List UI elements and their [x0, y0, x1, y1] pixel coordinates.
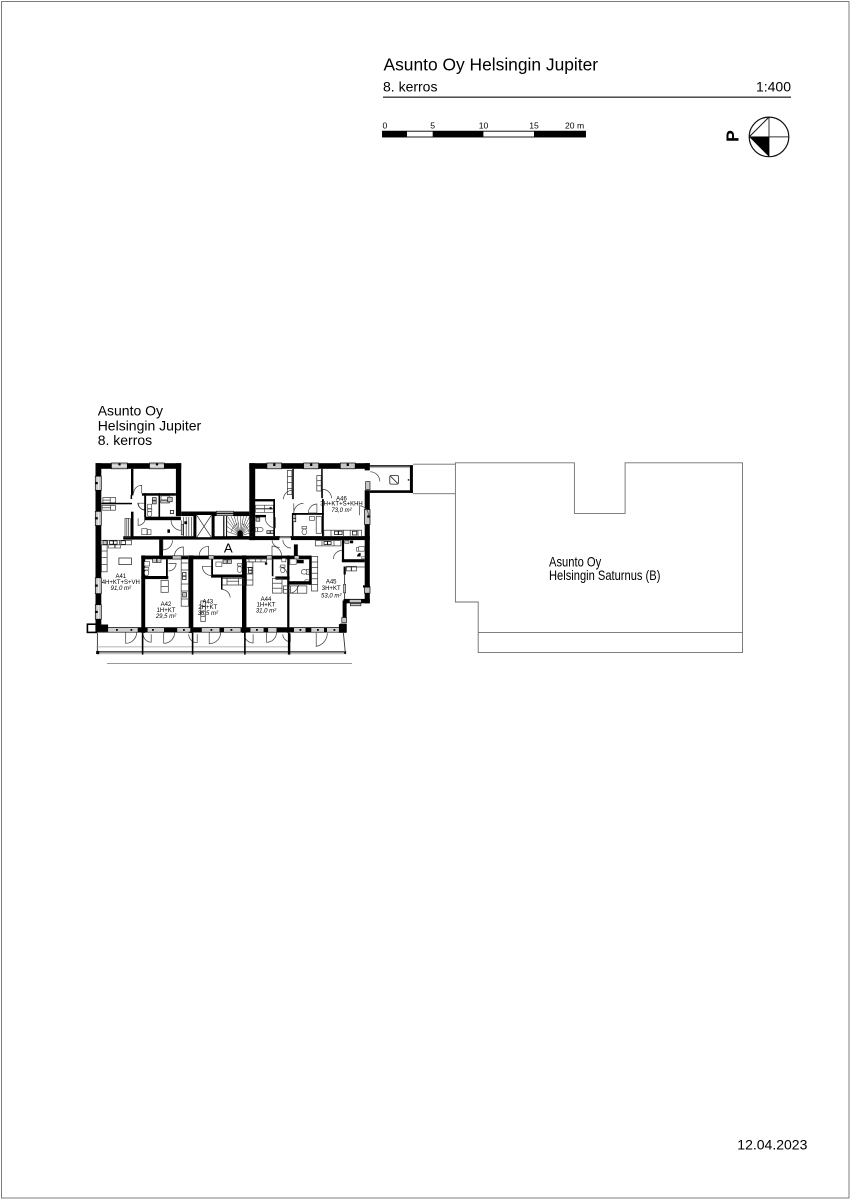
svg-text:A45: A45: [326, 579, 337, 585]
svg-text:10: 10: [479, 120, 489, 130]
svg-text:Helsingin Jupiter: Helsingin Jupiter: [98, 417, 202, 433]
svg-text:53,0 m²: 53,0 m²: [321, 593, 342, 599]
svg-text:31,0 m²: 31,0 m²: [256, 608, 277, 614]
svg-text:8. kerros: 8. kerros: [98, 432, 152, 448]
svg-text:1:400: 1:400: [756, 79, 791, 95]
svg-text:8. kerros: 8. kerros: [383, 79, 437, 95]
svg-text:15: 15: [529, 120, 539, 130]
svg-text:3H+KT+S+KHH: 3H+KT+S+KHH: [320, 502, 363, 508]
svg-text:12.04.2023: 12.04.2023: [737, 1137, 807, 1153]
svg-text:5: 5: [430, 120, 435, 130]
svg-text:Asunto Oy: Asunto Oy: [98, 403, 163, 419]
svg-text:73,0 m²: 73,0 m²: [331, 508, 352, 514]
svg-text:3H+KT: 3H+KT: [322, 586, 341, 592]
svg-text:P: P: [723, 130, 743, 142]
svg-text:91,0 m²: 91,0 m²: [111, 586, 132, 592]
svg-text:29,5 m²: 29,5 m²: [155, 614, 177, 620]
svg-text:0: 0: [383, 120, 388, 130]
svg-text:Helsingin Saturnus (B): Helsingin Saturnus (B): [549, 567, 660, 583]
svg-text:1H+KT: 1H+KT: [157, 608, 176, 614]
svg-text:A: A: [224, 540, 233, 555]
svg-text:36,5 m²: 36,5 m²: [198, 611, 219, 617]
svg-text:4H+KT+S+VH: 4H+KT+S+VH: [102, 580, 140, 586]
svg-text:20 m: 20 m: [565, 120, 584, 130]
svg-text:Asunto Oy Helsingin Jupiter: Asunto Oy Helsingin Jupiter: [384, 54, 599, 74]
